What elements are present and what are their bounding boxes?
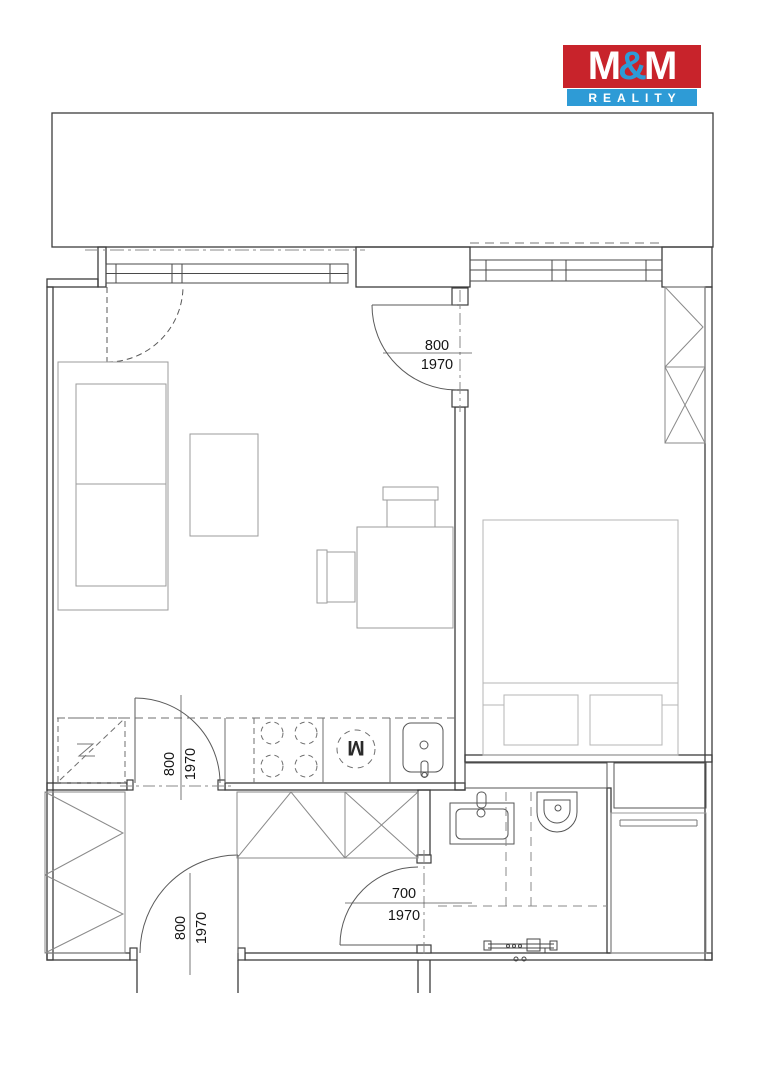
chair-left bbox=[317, 550, 355, 603]
fridge-z-mark bbox=[77, 744, 95, 756]
bedroom-bottom-wall bbox=[465, 755, 712, 762]
entrance-door-height: 1970 bbox=[194, 912, 210, 944]
mm-reality-logo: M&M REALITY bbox=[563, 45, 701, 106]
top-wall-left bbox=[47, 279, 98, 287]
entrance-door-width: 800 bbox=[173, 916, 189, 940]
kitchen-hall-wall-right bbox=[225, 783, 465, 790]
bathroom-door-height: 1970 bbox=[388, 908, 420, 924]
walls bbox=[47, 113, 713, 993]
dining-set bbox=[317, 487, 453, 628]
towel-radiator bbox=[484, 939, 557, 961]
wardrobe-top-row bbox=[237, 792, 418, 858]
washbasin bbox=[450, 792, 514, 844]
washing-machine-label: M bbox=[347, 736, 365, 759]
coffee-table bbox=[190, 434, 258, 536]
pier-middle bbox=[356, 247, 470, 287]
bedroom-furniture bbox=[483, 287, 705, 755]
logo-letter-m1: M bbox=[588, 45, 620, 88]
chair-top bbox=[383, 487, 438, 527]
bathroom-hall-wall bbox=[418, 790, 430, 855]
shaft-box-right bbox=[614, 763, 706, 808]
logo-mm-box: M&M bbox=[563, 45, 701, 88]
entrance-door bbox=[140, 855, 238, 953]
doors bbox=[107, 287, 460, 958]
left-wall bbox=[47, 287, 53, 960]
logo-letter-m2: M bbox=[644, 45, 676, 88]
right-zone-radiator bbox=[620, 820, 697, 826]
stove-burners bbox=[261, 722, 317, 777]
floor-plan-page: M&M REALITY bbox=[0, 0, 763, 1080]
balcony-slab bbox=[52, 113, 713, 247]
pillow-right bbox=[590, 695, 662, 745]
bathroom-door bbox=[340, 867, 418, 945]
logo-ampersand: & bbox=[618, 45, 646, 88]
shafts-right-zone bbox=[465, 763, 706, 953]
bathroom-door-width: 700 bbox=[392, 886, 416, 902]
bottom-wall-left bbox=[47, 953, 130, 960]
living-bedroom-wall bbox=[455, 407, 465, 790]
hallway-wardrobes bbox=[45, 792, 418, 953]
kitchen-sink bbox=[403, 723, 443, 778]
shaft-box-left bbox=[465, 763, 607, 788]
floor-plan-svg: M bbox=[0, 0, 763, 1080]
dining-table bbox=[357, 527, 453, 628]
kitchen bbox=[57, 718, 455, 783]
bottom-wall-right bbox=[245, 953, 712, 960]
logo-reality-text: REALITY bbox=[582, 91, 681, 105]
windows bbox=[85, 243, 662, 283]
corridor-wall-stubs bbox=[137, 960, 430, 993]
living-hall-door-height: 1970 bbox=[183, 748, 199, 780]
balcony-door-swing bbox=[107, 287, 183, 362]
bedroom-wardrobe bbox=[665, 287, 705, 443]
double-bed bbox=[483, 520, 678, 755]
logo-reality-bar: REALITY bbox=[567, 89, 697, 106]
sofa bbox=[58, 362, 168, 610]
bathroom-partition bbox=[607, 788, 611, 953]
fridge bbox=[58, 718, 125, 783]
bathroom bbox=[438, 792, 607, 961]
living-room-furniture bbox=[58, 362, 453, 628]
pillow-left bbox=[504, 695, 578, 745]
living-hall-door-width: 800 bbox=[162, 752, 178, 776]
kitchen-hall-wall-left bbox=[47, 783, 127, 790]
door-frames bbox=[127, 288, 468, 960]
toilet bbox=[537, 792, 577, 832]
wardrobe-left-column bbox=[45, 792, 125, 953]
balcony-door-window bbox=[106, 264, 348, 283]
bedroom-door-height: 1970 bbox=[421, 357, 453, 373]
pier-right bbox=[662, 247, 712, 287]
pier-left bbox=[98, 247, 106, 287]
bedroom-door-width: 800 bbox=[425, 338, 449, 354]
dimensions bbox=[181, 353, 472, 975]
bedroom-window bbox=[470, 260, 662, 281]
right-zone bbox=[611, 813, 706, 953]
